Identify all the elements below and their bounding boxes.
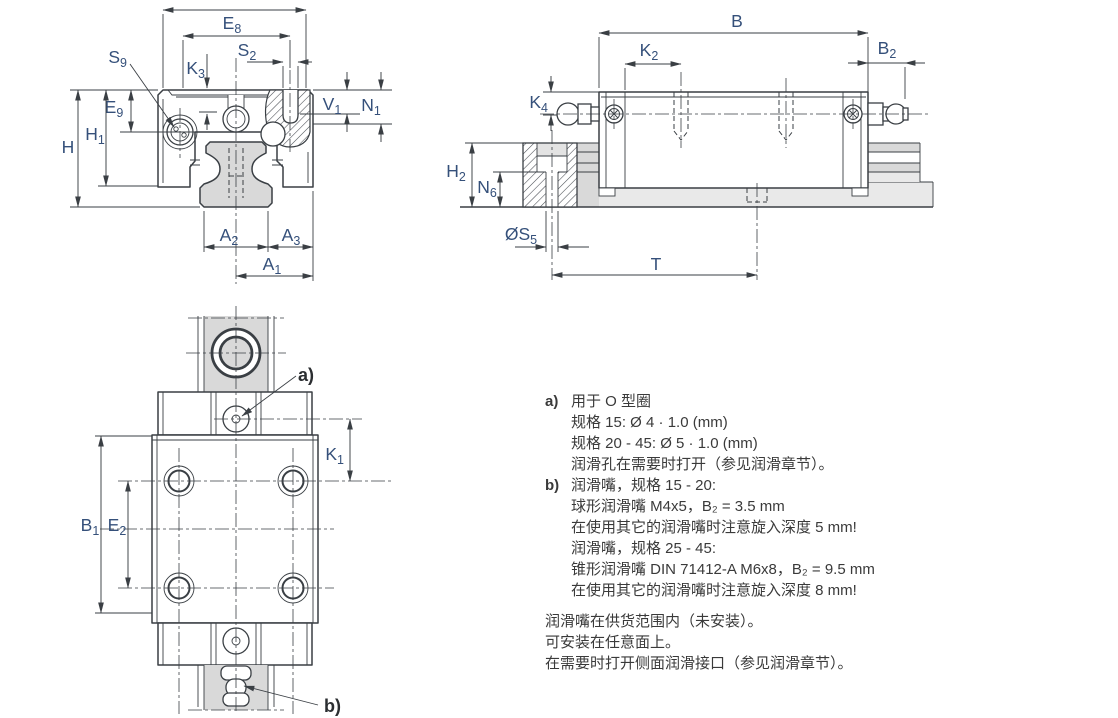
dim-label-h: H: [62, 137, 75, 157]
dim-s2: S2: [238, 40, 312, 88]
callout-label-a: a): [298, 365, 314, 385]
dim-t: T: [552, 254, 757, 275]
dim-label-s2: S2: [238, 40, 257, 63]
dim-label-e2: E2: [108, 515, 127, 538]
dim-b2: B2: [848, 38, 925, 99]
note-text: 在使用其它的润滑嘴时注意旋入深度 8 mm!: [571, 582, 857, 599]
dim-k2: K2: [625, 40, 681, 90]
rail-bolt-section-hatch: [523, 130, 577, 280]
end-cap-top: [158, 392, 362, 435]
dim-label-v1: V1: [323, 94, 342, 117]
dim-label-a1: A1: [263, 254, 282, 277]
note-text: 可安装在任意面上。: [545, 634, 680, 651]
top-view: a) b) K1 B1 E2: [81, 306, 392, 716]
dim-label-e8: E8: [223, 13, 242, 36]
dim-s5: ØS5: [505, 211, 589, 252]
note-line: 在使用其它的润滑嘴时注意旋入深度 5 mm!: [545, 517, 985, 538]
lubrication-notes: a)用于 O 型圈 规格 15: Ø 4 · 1.0 (mm) 规格 20 - …: [545, 391, 985, 674]
dim-label-s9: S9: [108, 47, 127, 70]
note-line: a)用于 O 型圈: [545, 391, 985, 412]
dim-e2: E2: [108, 481, 128, 588]
notes-spacer: [545, 601, 985, 611]
note-text: 用于 O 型圈: [571, 393, 651, 410]
dim-label-a2: A2: [220, 225, 239, 248]
callout-label-b: b): [324, 696, 341, 716]
dim-label-n1: N1: [361, 95, 381, 118]
note-text: 在需要时打开侧面润滑接口（参见润滑章节）。: [545, 655, 853, 672]
note-text: 锥形润滑嘴 DIN 71412-A M6x8，B₂ = 9.5 mm: [571, 561, 875, 578]
note-line: b)润滑嘴，规格 15 - 20:: [545, 475, 985, 496]
note-text: 规格 15: Ø 4 · 1.0 (mm): [571, 414, 728, 431]
note-line: 润滑嘴在供货范围内（未安装）。: [545, 611, 985, 632]
lube-duct-section-hatch: [261, 70, 310, 152]
note-text: 球形润滑嘴 M4x5，B₂ = 3.5 mm: [571, 498, 785, 515]
dim-label-k1: K1: [325, 444, 344, 467]
note-line: 在需要时打开侧面润滑接口（参见润滑章节）。: [545, 653, 985, 674]
note-text: 在使用其它的润滑嘴时注意旋入深度 5 mm!: [571, 519, 857, 536]
note-text: 规格 20 - 45: Ø 5 · 1.0 (mm): [571, 435, 758, 452]
carriage-side: [599, 92, 868, 196]
dim-label-e9: E9: [105, 97, 124, 120]
note-text: 润滑嘴，规格 15 - 20:: [571, 477, 716, 494]
note-line: 润滑孔在需要时打开（参见润滑章节）。: [545, 454, 985, 475]
dim-label-h2: H2: [446, 161, 466, 184]
note-line: 规格 15: Ø 4 · 1.0 (mm): [545, 412, 985, 433]
dim-label-n6: N6: [477, 177, 497, 200]
dim-v1-n1: V1 N1: [300, 72, 392, 142]
dim-k1: K1: [325, 419, 350, 481]
dim-label-a3: A3: [282, 225, 301, 248]
note-text: 润滑孔在需要时打开（参见润滑章节）。: [571, 456, 834, 473]
note-line: 锥形润滑嘴 DIN 71412-A M6x8，B₂ = 9.5 mm: [545, 559, 985, 580]
dim-label-b1: B1: [81, 515, 100, 538]
dim-label-h1: H1: [85, 124, 105, 147]
dim-label-k2: K2: [640, 40, 659, 63]
dim-h2: H2: [446, 143, 523, 207]
note-line: 在使用其它的润滑嘴时注意旋入深度 8 mm!: [545, 580, 985, 601]
note-text: 润滑嘴，规格 25 - 45:: [571, 540, 716, 557]
note-text: 润滑嘴在供货范围内（未安装）。: [545, 613, 763, 630]
dim-label-k4: K4: [529, 92, 548, 115]
note-line: 球形润滑嘴 M4x5，B₂ = 3.5 mm: [545, 496, 985, 517]
cross-section-view: E8 S2 K3 S9 E9 H1 H: [62, 10, 392, 284]
side-view: B K2 B2 K4 H2 N6: [446, 11, 933, 280]
dim-label-k3: K3: [186, 58, 205, 81]
note-line: 规格 20 - 45: Ø 5 · 1.0 (mm): [545, 433, 985, 454]
note-ref-b: b): [545, 475, 559, 496]
note-line: 润滑嘴，规格 25 - 45:: [545, 538, 985, 559]
catalog-figure-page: E8 S2 K3 S9 E9 H1 H: [0, 0, 1118, 718]
dim-label-b2: B2: [878, 38, 897, 61]
dim-label-t: T: [651, 254, 662, 274]
dim-label-b: B: [731, 11, 743, 31]
end-cap-bottom: [158, 623, 312, 665]
dim-label-s5: ØS5: [505, 224, 537, 247]
note-ref-a: a): [545, 391, 558, 412]
note-line: 可安装在任意面上。: [545, 632, 985, 653]
